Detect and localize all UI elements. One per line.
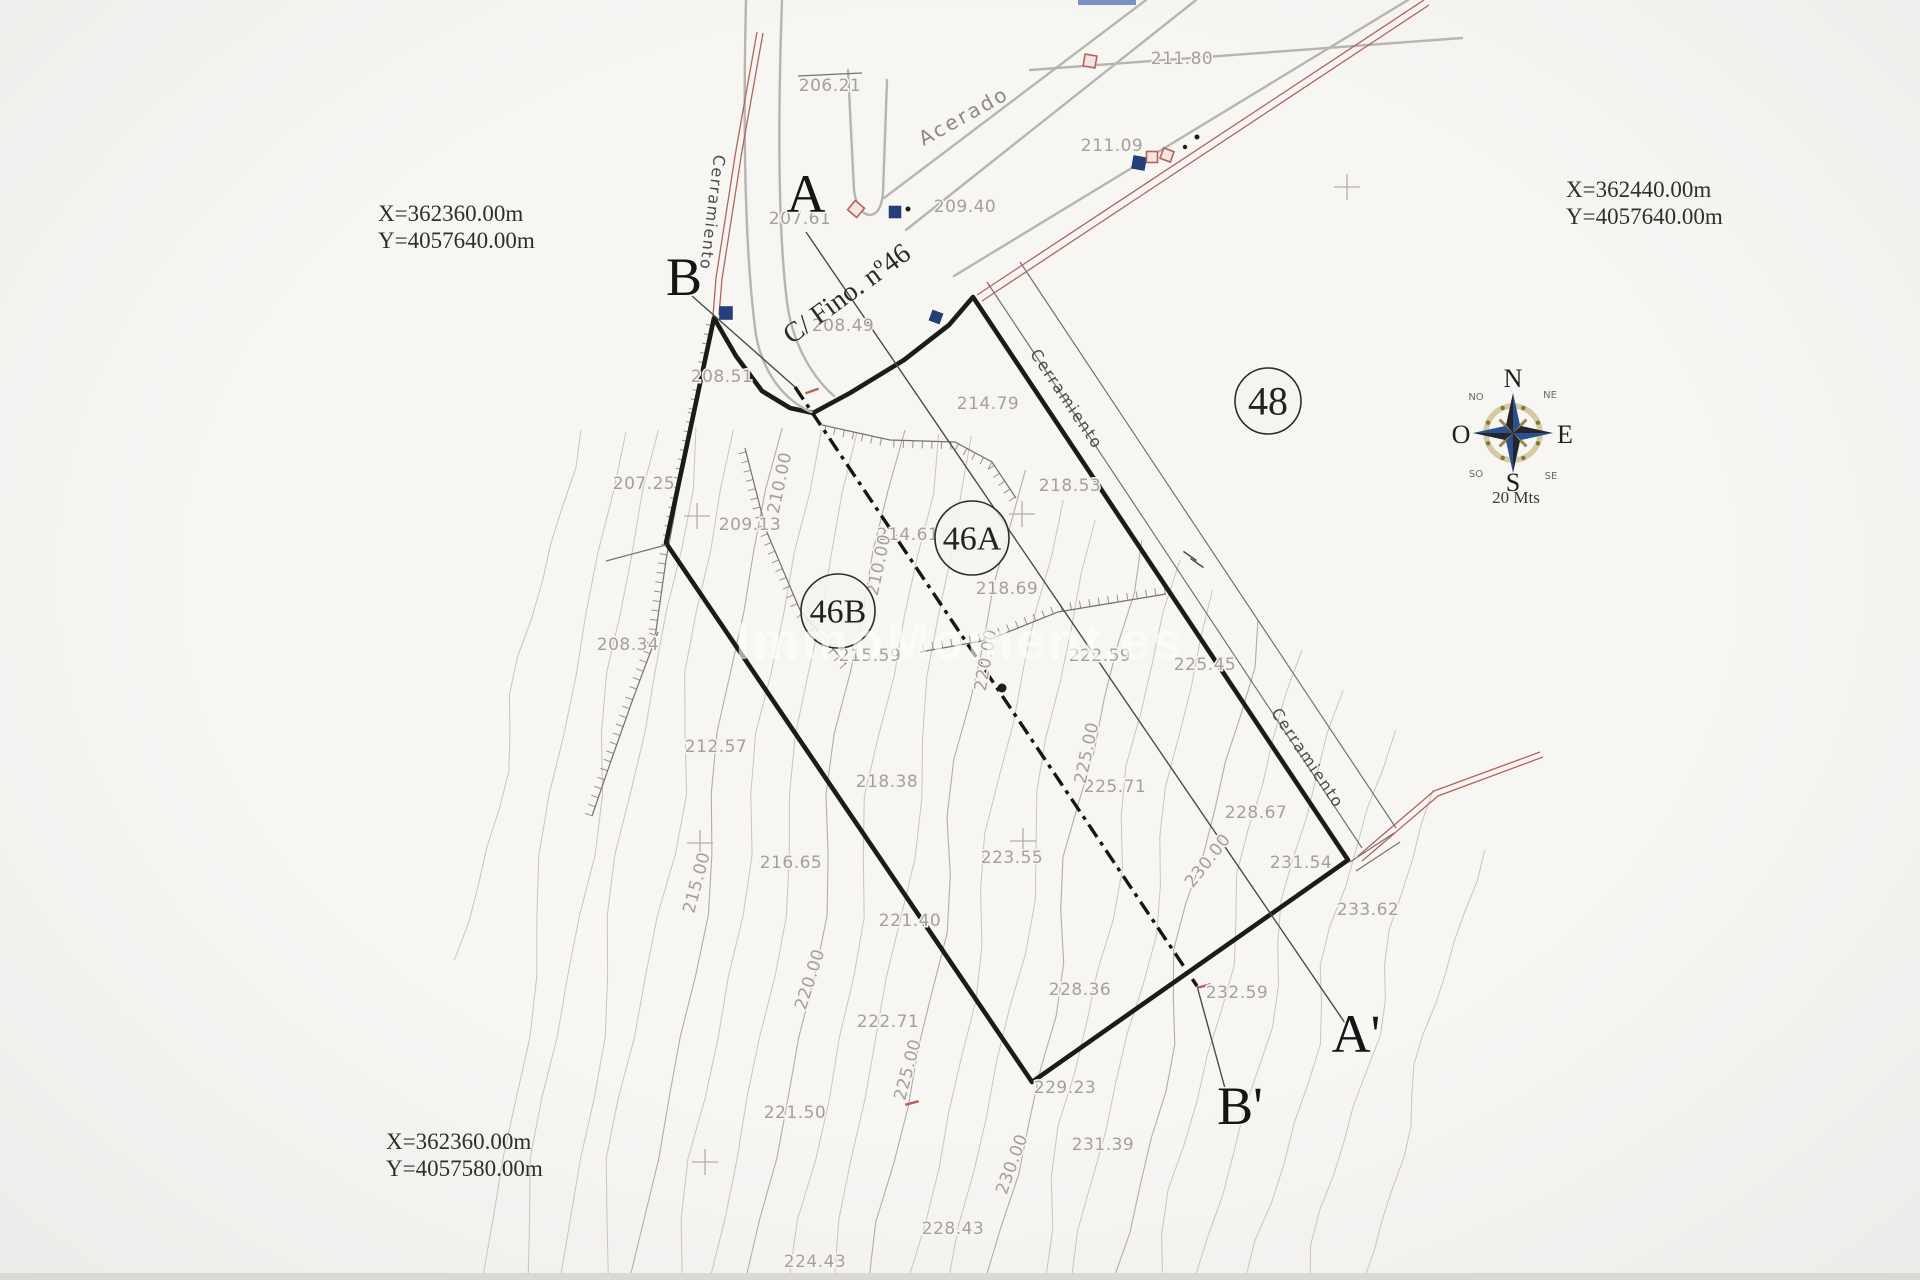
spot-elevation-label: 212.57 [685,737,747,757]
north-bank [822,425,1016,498]
bank-tick [955,444,959,451]
red-tick-marker [805,389,818,394]
red-fence-ne-1 [977,0,1424,295]
compass-star-point [1473,426,1513,440]
spot-elevation-label: 228.67 [1225,803,1287,823]
bank-tick [861,434,863,441]
spot-elevation-label: 228.36 [1049,980,1111,1000]
bank-tick [658,563,665,564]
bank-tick [843,430,845,437]
corner-step-2 [1356,842,1400,871]
bank-tick [655,582,662,583]
coord-label-bottom-left: X=362360.00m Y=4057580.00m [386,1128,543,1182]
bank-tick [588,804,595,806]
bank-tick [613,733,620,736]
contour-index-label: 220.00 [791,947,829,1013]
spot-elevation-label: 218.69 [976,579,1038,599]
map-scale-label: 20 Mts [1492,488,1540,507]
bank-tick [649,629,656,630]
bank-tick [1089,599,1090,606]
bank-tick [660,554,667,555]
coord-label-top-left: X=362360.00m Y=4057640.00m [378,200,535,254]
spot-elevation-label: 207.25 [613,474,675,494]
coord-y: Y=4057640.00m [1566,203,1723,230]
contour-index-label: 225.00 [1071,720,1104,785]
coord-x: X=362440.00m [1566,176,1723,203]
bank-tick [636,669,643,672]
bank-tick [871,436,873,443]
bank-tick [1127,593,1128,600]
bank-tick [607,751,614,754]
section-letter: B' [1217,1076,1263,1136]
bank-tick [616,724,623,727]
bank-tick [626,697,633,700]
utility-marker-icon [720,307,733,320]
lamp-marker-icon [848,201,865,218]
bank-tick [640,660,647,663]
section-letter: A' [1332,1004,1381,1064]
section-letter: B [666,247,702,307]
street-label: Acerado [914,81,1013,150]
spot-elevation-label: 228.43 [922,1219,984,1239]
spot-elevation-label: 231.54 [1270,853,1332,873]
bank-tick [787,595,794,598]
contour-index-label: 225.00 [890,1037,925,1103]
spot-elevation-label: 209.13 [719,515,781,535]
bank-tick [654,591,661,592]
bank-tick [790,604,797,607]
bank-tick [622,706,629,709]
bank-tick [1117,595,1118,602]
compass-ring-dot [1500,456,1504,460]
bank-tick [768,551,775,554]
spot-elevation-label: 221.40 [879,911,941,931]
spot-elevation-label: 222.71 [857,1012,919,1032]
contour-line [454,430,581,960]
bank-tick [604,759,611,761]
spot-elevation-label: 208.51 [691,367,753,387]
section-letter: A [787,164,826,224]
coord-y: Y=4057640.00m [378,227,535,254]
bank-tick [1155,588,1156,595]
point-marker [998,684,1007,693]
coord-x: X=362360.00m [378,200,535,227]
compass-ring-dot [1486,420,1490,424]
coord-y: Y=4057580.00m [386,1155,543,1182]
bank-tick [852,432,854,439]
scan-artifact-top [1078,0,1136,5]
bank-tick [591,795,598,797]
bank-tick [651,610,658,611]
compass-label-e: E [1557,420,1573,449]
utility-marker-icon [889,206,901,218]
coord-label-top-right: X=362440.00m Y=4057640.00m [1566,176,1723,230]
red-fence-east-2 [1362,757,1543,861]
coord-x: X=362360.00m [386,1128,543,1155]
compass-star-point [1506,393,1520,433]
spot-elevation-label: 232.59 [1206,983,1268,1003]
bank-tick [963,448,967,455]
bank-tick [1079,601,1080,608]
lamp-marker-icon [1083,54,1097,68]
bank-tick [783,586,790,589]
section-line-b-dashed [795,387,1197,986]
ne-offset-line-2 [1020,262,1396,828]
parcel-number-label: 48 [1248,379,1288,424]
bank-tick [630,686,637,689]
bank-tick [1136,591,1137,598]
west-corner-spur [606,545,666,561]
compass-ring-dot [1486,441,1490,445]
scanned-site-plan: 206.21211.80211.09209.40207.61208.49208.… [0,0,1920,1280]
bank-tick [597,777,604,779]
spot-elevation-label: 233.62 [1337,900,1399,920]
bank-tick [650,619,657,620]
compass-ring-dot [1521,456,1525,460]
bank-tick [753,507,760,509]
contour-index-label: 230.00 [1181,830,1235,892]
point-marker [1183,145,1187,149]
bank-tick [880,438,882,445]
bank-tick [594,786,601,788]
bank-tick [1070,602,1071,609]
compass-star-point [1513,426,1553,440]
bank-tick [980,457,984,464]
compass-label-so: SO [1469,469,1483,480]
contour-index-label: 230.00 [992,1132,1032,1198]
bank-tick [610,742,617,745]
dimension-tick [1190,558,1203,567]
bank-tick [743,470,750,472]
bank-tick [601,768,608,770]
bank-tick [633,678,640,681]
point-marker [1195,135,1200,140]
spot-elevation-label: 216.65 [760,853,822,873]
contour-index-label: 215.00 [679,850,714,916]
spot-elevation-label: 231.39 [1072,1135,1134,1155]
bank-tick [779,577,786,580]
bank-tick [1004,489,1010,493]
spot-elevation-label: 224.43 [784,1252,846,1272]
compass-rose: NESONONESOSE20 Mts [1452,364,1573,507]
compass-ring-dot [1500,406,1504,410]
bank-tick [653,601,660,602]
scan-edge-bottom [0,1273,1920,1280]
bank-tick [772,560,779,563]
bank-tick [1108,596,1109,603]
bank-tick [764,542,771,545]
road-north-edge [884,0,1146,198]
spot-elevation-label: 211.80 [1151,49,1213,69]
watermark: ImmoMoment.es [735,612,1184,672]
bank-tick [657,572,664,573]
bank-tick [619,715,626,718]
utility-marker-icon [1131,155,1146,170]
bank-tick [748,489,755,491]
bank-tick [1009,497,1015,501]
bank-tick [741,461,748,463]
spot-elevation-label: 214.79 [957,394,1019,414]
contour-index-label: 210.00 [764,450,797,515]
compass-ring-dot [1536,441,1540,445]
bank-tick [776,569,783,572]
bank-tick [739,452,746,454]
compass-label-se: SE [1545,471,1558,482]
bank-tick [834,428,836,435]
utility-marker-icon [929,310,943,324]
spot-elevation-label: 218.53 [1039,476,1101,496]
compass-star-point [1506,433,1520,473]
bank-tick [1098,598,1099,605]
bank-tick [751,498,758,500]
compass-label-no: NO [1468,392,1483,403]
spot-elevation-label: 221.50 [764,1103,826,1123]
bank-tick [585,813,592,815]
contour-line [1113,620,1258,1280]
spot-elevation-label: 218.38 [856,772,918,792]
bank-tick [1145,590,1146,597]
bank-tick [972,453,976,460]
compass-ring-dot [1521,406,1525,410]
bank-tick [746,479,753,481]
spot-elevation-label: 225.71 [1084,777,1146,797]
bank-tick [993,473,999,477]
bank-tick [999,481,1005,485]
spot-elevation-label: 223.55 [981,848,1043,868]
spot-elevation-label: 229.23 [1034,1078,1096,1098]
compass-ring-dot [1536,420,1540,424]
dimension-tick [1183,551,1196,560]
spot-elevation-label: 208.34 [597,635,659,655]
spot-elevation-label: 209.40 [934,197,996,217]
spot-elevation-label: 206.21 [799,76,861,96]
compass-label-ne: NE [1543,390,1557,401]
lamp-marker-icon [1147,152,1158,163]
parcel-number-label: 46A [943,521,1002,558]
spot-elevation-label: 211.09 [1081,136,1143,156]
compass-label-o: O [1452,420,1471,449]
compass-label-n: N [1504,364,1523,393]
point-marker [906,207,911,212]
